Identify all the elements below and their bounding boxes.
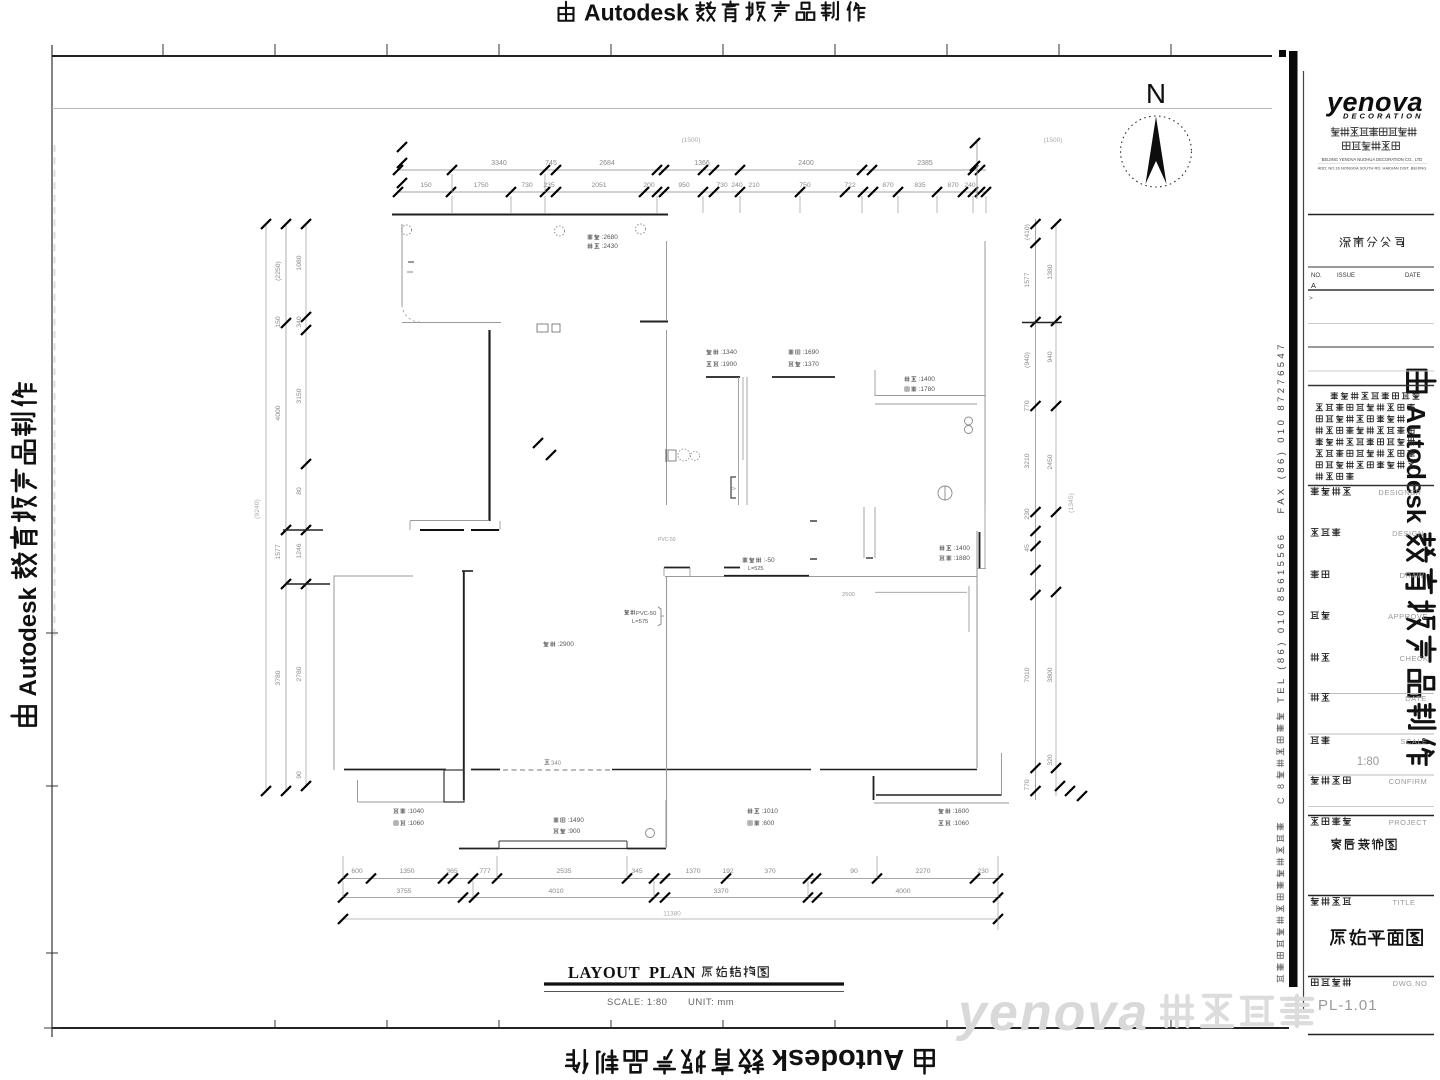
- svg-text:230: 230: [977, 868, 989, 875]
- svg-text:1577: 1577: [275, 544, 282, 559]
- svg-text::2430: :2430: [602, 243, 619, 250]
- svg-text:210: 210: [748, 182, 760, 189]
- svg-text:240: 240: [731, 182, 743, 189]
- svg-text:4000: 4000: [275, 405, 282, 420]
- svg-text:CONFIRM: CONFIRM: [1389, 777, 1428, 786]
- svg-text:LAYOUT PLAN: LAYOUT PLAN: [568, 963, 696, 982]
- svg-text:(2250): (2250): [275, 261, 282, 281]
- svg-text:L=525: L=525: [748, 566, 763, 572]
- svg-text:2400: 2400: [798, 160, 814, 167]
- svg-text:N: N: [1146, 78, 1166, 109]
- svg-text:3340: 3340: [491, 160, 507, 167]
- svg-text::1690: :1690: [803, 349, 820, 356]
- svg-text:370: 370: [764, 868, 776, 875]
- svg-text:770: 770: [1024, 400, 1031, 412]
- svg-text:PL-1.01: PL-1.01: [1318, 997, 1378, 1014]
- svg-text:1246: 1246: [296, 543, 303, 558]
- svg-text:DATE: DATE: [1405, 273, 1421, 279]
- svg-text:320: 320: [1047, 754, 1054, 766]
- svg-text:(1345): (1345): [1068, 493, 1075, 513]
- svg-text:2684: 2684: [599, 160, 615, 167]
- svg-text::1060: :1060: [953, 820, 970, 827]
- svg-text::1040: :1040: [408, 808, 425, 815]
- svg-text:1080: 1080: [296, 255, 303, 270]
- svg-text:APPROVE: APPROVE: [1388, 612, 1428, 621]
- svg-text:DATE: DATE: [1405, 694, 1426, 703]
- svg-text:NO.: NO.: [1311, 273, 1322, 279]
- svg-text:2780: 2780: [296, 666, 303, 681]
- svg-text:1750: 1750: [473, 182, 488, 189]
- svg-text::2680: :2680: [602, 234, 619, 241]
- svg-text:DRAW: DRAW: [1400, 571, 1425, 580]
- svg-text:11380: 11380: [663, 911, 681, 918]
- svg-text:SCALE: 1:80: SCALE: 1:80: [607, 997, 667, 1008]
- svg-text:45: 45: [1024, 544, 1031, 552]
- svg-text:PVC-50: PVC-50: [658, 537, 676, 543]
- svg-text:DESIGN: DESIGN: [1392, 529, 1424, 538]
- svg-text:<>: <>: [730, 486, 736, 491]
- svg-text:UNIT: mm: UNIT: mm: [688, 997, 734, 1008]
- svg-text:3800: 3800: [1047, 667, 1054, 682]
- svg-text:750: 750: [799, 182, 811, 189]
- svg-text:150: 150: [420, 182, 432, 189]
- svg-text:L=575: L=575: [632, 619, 648, 625]
- svg-text::1370: :1370: [803, 361, 820, 368]
- svg-text:730: 730: [521, 182, 533, 189]
- svg-text:90: 90: [850, 868, 858, 875]
- svg-text:SCALE: SCALE: [1400, 737, 1427, 746]
- svg-text::1400: :1400: [954, 545, 971, 552]
- svg-text:TEL (86) 010 85615566 FAX (8: TEL (86) 010 85615566 FAX (86) 010 87276…: [1276, 341, 1287, 703]
- svg-text:(9240): (9240): [254, 499, 261, 519]
- svg-text::1600: :1600: [953, 808, 970, 815]
- svg-text:870: 870: [882, 182, 894, 189]
- svg-text:3370: 3370: [713, 888, 728, 895]
- svg-text:940: 940: [1047, 351, 1054, 363]
- svg-text:Autodesk: Autodesk: [771, 1043, 904, 1075]
- svg-text:722: 722: [844, 182, 856, 189]
- svg-text:2535: 2535: [556, 868, 571, 875]
- svg-text:770: 770: [1024, 779, 1031, 791]
- svg-text:730: 730: [716, 182, 728, 189]
- svg-text:Autodesk: Autodesk: [15, 587, 42, 697]
- svg-text:>: >: [1309, 295, 1313, 302]
- svg-text::1880: :1880: [954, 555, 971, 562]
- svg-text:345: 345: [631, 868, 643, 875]
- svg-text:745: 745: [545, 160, 557, 167]
- svg-text:C 8: C 8: [1276, 781, 1286, 815]
- svg-text:3755: 3755: [396, 888, 411, 895]
- svg-text:(940): (940): [1024, 352, 1031, 368]
- svg-text::2900: :2900: [558, 641, 575, 648]
- svg-text:835: 835: [914, 182, 926, 189]
- svg-text:DECORATION: DECORATION: [1343, 112, 1423, 121]
- svg-text:200: 200: [643, 182, 655, 189]
- svg-text:1366: 1366: [694, 160, 710, 167]
- svg-text:BEIJING YENOVA NUOHUA DECORATI: BEIJING YENOVA NUOHUA DECORATION CO., LT…: [1322, 157, 1423, 162]
- svg-text:Autodesk: Autodesk: [584, 0, 689, 26]
- svg-text:870: 870: [947, 182, 959, 189]
- svg-text:A: A: [1311, 281, 1316, 290]
- svg-text:340: 340: [551, 761, 562, 767]
- svg-text::1780: :1780: [919, 386, 936, 393]
- svg-text:(1500): (1500): [1044, 137, 1063, 144]
- svg-text:1:80: 1:80: [1357, 756, 1379, 768]
- svg-text::1400: :1400: [919, 376, 936, 383]
- svg-text:DWG.NO: DWG.NO: [1393, 979, 1428, 988]
- svg-text::1490: :1490: [568, 817, 585, 824]
- svg-text:80: 80: [296, 487, 303, 495]
- svg-text:(410): (410): [1024, 224, 1031, 240]
- svg-text::600: :600: [762, 820, 775, 827]
- svg-text:235: 235: [543, 182, 555, 189]
- svg-text:230: 230: [1024, 508, 1031, 520]
- svg-text::1340: :1340: [721, 349, 738, 356]
- svg-text:2450: 2450: [1047, 454, 1054, 469]
- svg-text::900: :900: [568, 828, 581, 835]
- svg-text:3150: 3150: [296, 388, 303, 403]
- svg-text::1010: :1010: [762, 808, 779, 815]
- svg-text:340: 340: [296, 316, 303, 328]
- svg-text:1350: 1350: [399, 868, 414, 875]
- svg-text:7010: 7010: [1024, 667, 1031, 682]
- svg-text:600: 600: [351, 868, 363, 875]
- svg-text:2051: 2051: [591, 182, 606, 189]
- svg-text:2385: 2385: [917, 160, 933, 167]
- svg-text:ADD: NO.16 NONGDA SOUTH RD. HA: ADD: NO.16 NONGDA SOUTH RD. HAIDIAN DIST…: [1318, 166, 1427, 171]
- svg-text:3210: 3210: [1024, 453, 1031, 468]
- svg-text:yenova: yenova: [955, 984, 1149, 1042]
- svg-text:192: 192: [722, 868, 734, 875]
- svg-text:PVC-50: PVC-50: [636, 611, 656, 617]
- svg-text:4010: 4010: [548, 888, 563, 895]
- svg-text:950: 950: [678, 182, 690, 189]
- svg-text:TITLE: TITLE: [1393, 898, 1416, 907]
- svg-text:2270: 2270: [915, 868, 930, 875]
- svg-text:4000: 4000: [895, 888, 910, 895]
- svg-text:1380: 1380: [1047, 264, 1054, 279]
- svg-text:777: 777: [479, 868, 491, 875]
- svg-text:CHECK: CHECK: [1400, 654, 1429, 663]
- svg-text:240: 240: [964, 182, 976, 189]
- svg-text::1060: :1060: [408, 820, 425, 827]
- svg-text:1370: 1370: [685, 868, 700, 875]
- svg-text:DESIGNER: DESIGNER: [1378, 488, 1421, 497]
- svg-text:150: 150: [275, 316, 282, 328]
- svg-text::1900: :1900: [721, 361, 738, 368]
- svg-text:365: 365: [446, 868, 458, 875]
- svg-text:2500: 2500: [842, 592, 855, 598]
- svg-text:PROJECT: PROJECT: [1389, 818, 1428, 827]
- svg-text:Autodesk: Autodesk: [1401, 405, 1431, 524]
- svg-text:3780: 3780: [275, 670, 282, 685]
- svg-text:(1500): (1500): [682, 137, 701, 144]
- svg-text:ISSUE: ISSUE: [1337, 273, 1355, 279]
- svg-text:1577: 1577: [1024, 272, 1031, 287]
- svg-text:90: 90: [296, 771, 303, 779]
- svg-text::-50: :-50: [763, 557, 775, 564]
